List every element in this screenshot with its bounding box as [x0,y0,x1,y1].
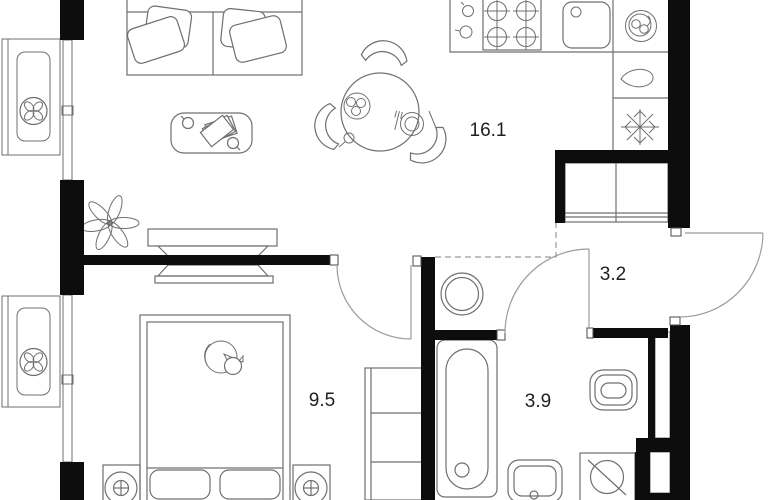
room-label-bedroom: 9.5 [309,390,335,411]
snowflake-icon [621,109,659,145]
duct-niche-bottom [650,452,670,493]
entrance-door [680,233,763,317]
tv-icon [158,265,268,276]
washing-machine [580,453,635,500]
tv-icon [158,246,268,256]
drop-icon [621,69,653,86]
burner-icon [484,0,539,50]
plant [80,194,139,252]
nightstand-left [103,465,140,500]
dishes-icon [626,11,657,42]
room-label-hallway: 3.2 [600,264,626,285]
window-top-left [62,40,73,180]
room-label-kitchen-living: 16.1 [470,120,507,141]
shelving-unit [365,368,423,500]
floor-plan: 16.1 3.2 9.5 3.9 [0,0,770,500]
bathtub [437,340,497,497]
bedroom-door [337,265,411,339]
pillow [150,470,210,499]
water-heater [441,273,483,315]
wardrobe [565,163,668,222]
fan-icon [20,349,47,376]
dining-table [339,73,436,151]
nightstand-right [293,465,330,500]
dining-chair-top [361,38,410,66]
stove [483,0,541,50]
bathroom-door [505,249,589,333]
window-bottom-left [62,295,73,462]
balcony-ac-unit-top [2,39,60,155]
pillow [126,15,187,65]
dining-chair-left [313,103,339,151]
room-label-bathroom: 3.9 [525,391,551,412]
cat [205,341,243,375]
bed [140,315,290,500]
wash-basin [508,460,562,500]
balcony-ac-unit-bottom [2,296,60,407]
duct-niche-top [655,332,670,438]
kitchen-sink [563,2,610,48]
zone-dashed-line [435,223,556,257]
knife-icon [429,111,436,128]
sofa [126,0,302,75]
fan-icon [20,98,47,125]
coffee-table [171,113,252,153]
pillow [220,470,280,499]
toilet [590,370,637,410]
